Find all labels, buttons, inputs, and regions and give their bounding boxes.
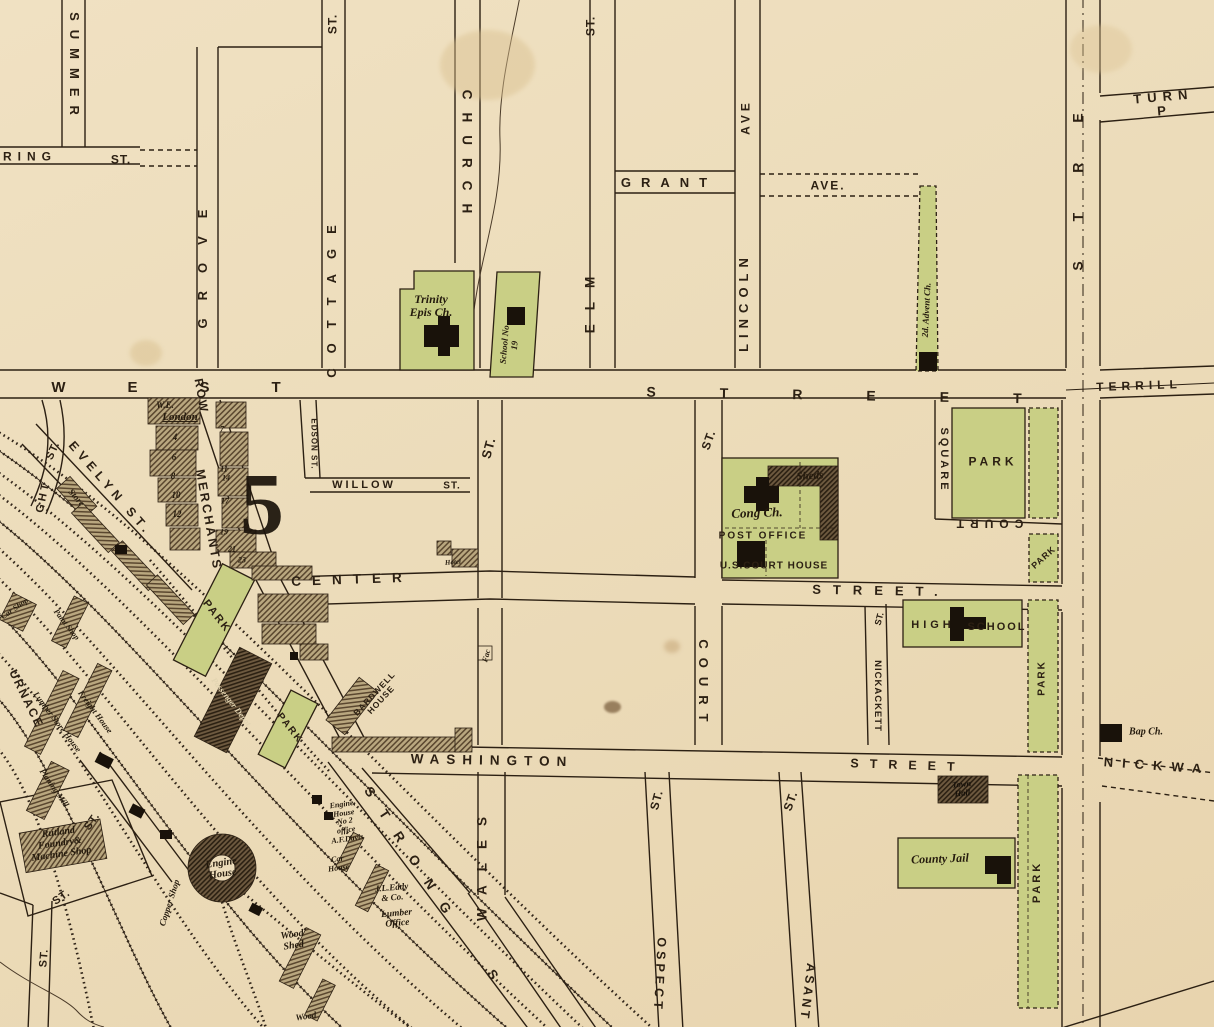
park-strip-center-label: PARK: [1038, 660, 1049, 696]
bardwell-house-label: BARDWELL HOUSE: [352, 670, 404, 724]
st-label-b-label: ST.: [51, 888, 73, 909]
hotel-label-label: Hotel: [445, 559, 462, 568]
car-shop-label: Car Shop: [0, 596, 30, 621]
turnpike-label: TURN P: [1133, 87, 1195, 120]
passenger-depot-label: Passenger Depot: [209, 676, 252, 728]
washington-street-label: WASHINGTON: [411, 752, 574, 769]
park-depot-south-label: PARK: [274, 712, 304, 747]
nickackett-street-st-label: ST.: [874, 611, 887, 626]
park-small-label: PARK: [1030, 545, 1058, 572]
school-no-19-label: School No 19: [499, 325, 522, 365]
grant-ave-label: GRANT: [621, 176, 717, 190]
pleasant-street-label: ASANT: [797, 962, 817, 1021]
county-jail-label: County Jail: [911, 852, 969, 867]
lot-4-label: 4: [173, 433, 178, 443]
lot-10-label: 10: [172, 491, 181, 501]
fac-label-label: Fac: [481, 649, 493, 664]
pleasant-street-st-label: ST.: [781, 789, 800, 813]
strong-street-s-label: S: [483, 967, 500, 983]
court-square-label: SQUARE: [937, 427, 949, 492]
lot-19-label: 19: [220, 529, 228, 538]
park-strip-south-label: PARK: [1032, 861, 1044, 903]
washington-street-street-label: STREET: [850, 757, 966, 775]
terrill-street-label: TERRILL: [1096, 378, 1182, 394]
trinity-epis-church-label: Trinity Epis Ch.: [410, 293, 453, 319]
map-canvas: RINGST.SUMMERGROVEST.COTTAGECHURCHST.ELM…: [0, 0, 1214, 1027]
cottage-street-label: COTTAGE: [325, 210, 339, 378]
grant-ave-ave-label: AVE.: [810, 180, 845, 193]
lot-6-label: 6: [172, 453, 177, 463]
court-street-label: COURT: [696, 639, 710, 730]
jl-eddy-co-label: J.L.Eddy & Co.: [374, 882, 409, 904]
prospect-street-st-label: ST.: [648, 788, 666, 811]
sheds-label-label: Sheds: [796, 470, 823, 483]
court-street-st-label: ST.: [699, 428, 718, 452]
rutland-foundry-label: Rutland Foundry& Machine Shop: [28, 824, 92, 864]
freight-house-label: Freight House: [76, 689, 114, 735]
planing-mill-label: Planing Mill: [37, 767, 70, 809]
us-court-house-label: U.S.COURT HOUSE: [720, 562, 828, 573]
park-court-square-label: PARK: [968, 456, 1017, 469]
wales-street-label: WALES: [476, 803, 491, 921]
high-school-school-label: SCHOOL: [967, 622, 1026, 634]
lincoln-ave-ave-label: AVE: [740, 99, 753, 135]
baptist-church-label: Bap Ch.: [1129, 728, 1163, 739]
district-number-label: 5: [240, 457, 284, 552]
cong-church-label: Cong Ch.: [731, 505, 783, 521]
willow-street-label: WILLOW: [332, 480, 396, 492]
cottage-street-st-label: ST.: [327, 14, 340, 34]
town-hall-label: Town Hall: [952, 779, 973, 799]
lumber-office-label: Lumber Office: [381, 907, 414, 930]
lot-8-label: 8: [171, 472, 176, 482]
willow-street-st-label: ST.: [443, 482, 460, 493]
center-street-street-label: STREET.: [812, 583, 950, 599]
nickwa-street-label: NICKWA: [1103, 755, 1210, 776]
post-office-label: POST OFFICE: [719, 532, 808, 543]
main-street-partial-label: STRE: [1070, 73, 1085, 270]
west-street-street-label: STREET: [646, 385, 1085, 408]
lot-23-label: 23: [238, 557, 246, 566]
edson-street-label: EDSON ST.: [309, 418, 318, 469]
elm-street-st-label: ST.: [585, 16, 598, 36]
center-street-label: CENTER: [291, 571, 413, 590]
prospect-street-label: OSPECT: [650, 937, 667, 1013]
wood-shed-label: Wood Shed: [280, 929, 306, 954]
paint-shop-label: Paint Shop: [51, 608, 80, 642]
court-street-flipped-label: COURT: [951, 517, 1024, 530]
wood-shed-2-label: Wood: [295, 1011, 317, 1024]
we-initials-label: W.E.: [156, 401, 174, 411]
second-advent-church-label: 2d. Advent Ch.: [921, 282, 934, 337]
mid-street-st-label: ST.: [479, 436, 498, 461]
summer-street-label: SUMMER: [67, 12, 81, 124]
park-depot-north-label: PARK: [200, 598, 233, 636]
lot-17-label: 17: [221, 498, 229, 507]
lot-21-label: 21: [228, 546, 236, 555]
evelyn-street-label: EVELYN ST.: [65, 439, 154, 539]
engine-house-no2-label: Engine, House No 2 office A.F.Davis: [326, 798, 364, 845]
lincoln-ave-label: LINCOLN: [737, 252, 751, 352]
lot-14-label: 14: [222, 475, 230, 484]
strong-street-label: STRONG: [361, 785, 464, 932]
high-school-high-label: HIGH: [911, 620, 955, 632]
lot-7-label: 7: [220, 426, 224, 435]
car-house-label: Car House: [326, 854, 350, 874]
merchants-row-label: MERCHANTS: [192, 468, 223, 571]
st-label-c-label: ST.: [38, 948, 51, 968]
london-label-label: London: [162, 412, 197, 424]
ring-street-st-label: ST.: [111, 154, 131, 167]
church-street-label: CHURCH: [459, 90, 474, 227]
map-labels: RINGST.SUMMERGROVEST.COTTAGECHURCHST.ELM…: [0, 0, 1214, 1027]
engine-house-round-label: Engine House: [205, 856, 239, 883]
ght-street-label: GHT: [35, 480, 53, 514]
ght-street-st-label: ST.: [45, 440, 64, 462]
ring-street-label: RING: [3, 151, 57, 164]
lot-12-label: 12: [173, 510, 182, 520]
store-label-label: Store: [66, 487, 86, 508]
grove-street-label: GROVE: [196, 192, 210, 329]
copper-shop-label: Copper Shop: [158, 879, 182, 928]
elm-street-label: ELM: [584, 263, 599, 334]
nickackett-street-label: NICKACKETT: [872, 660, 882, 732]
